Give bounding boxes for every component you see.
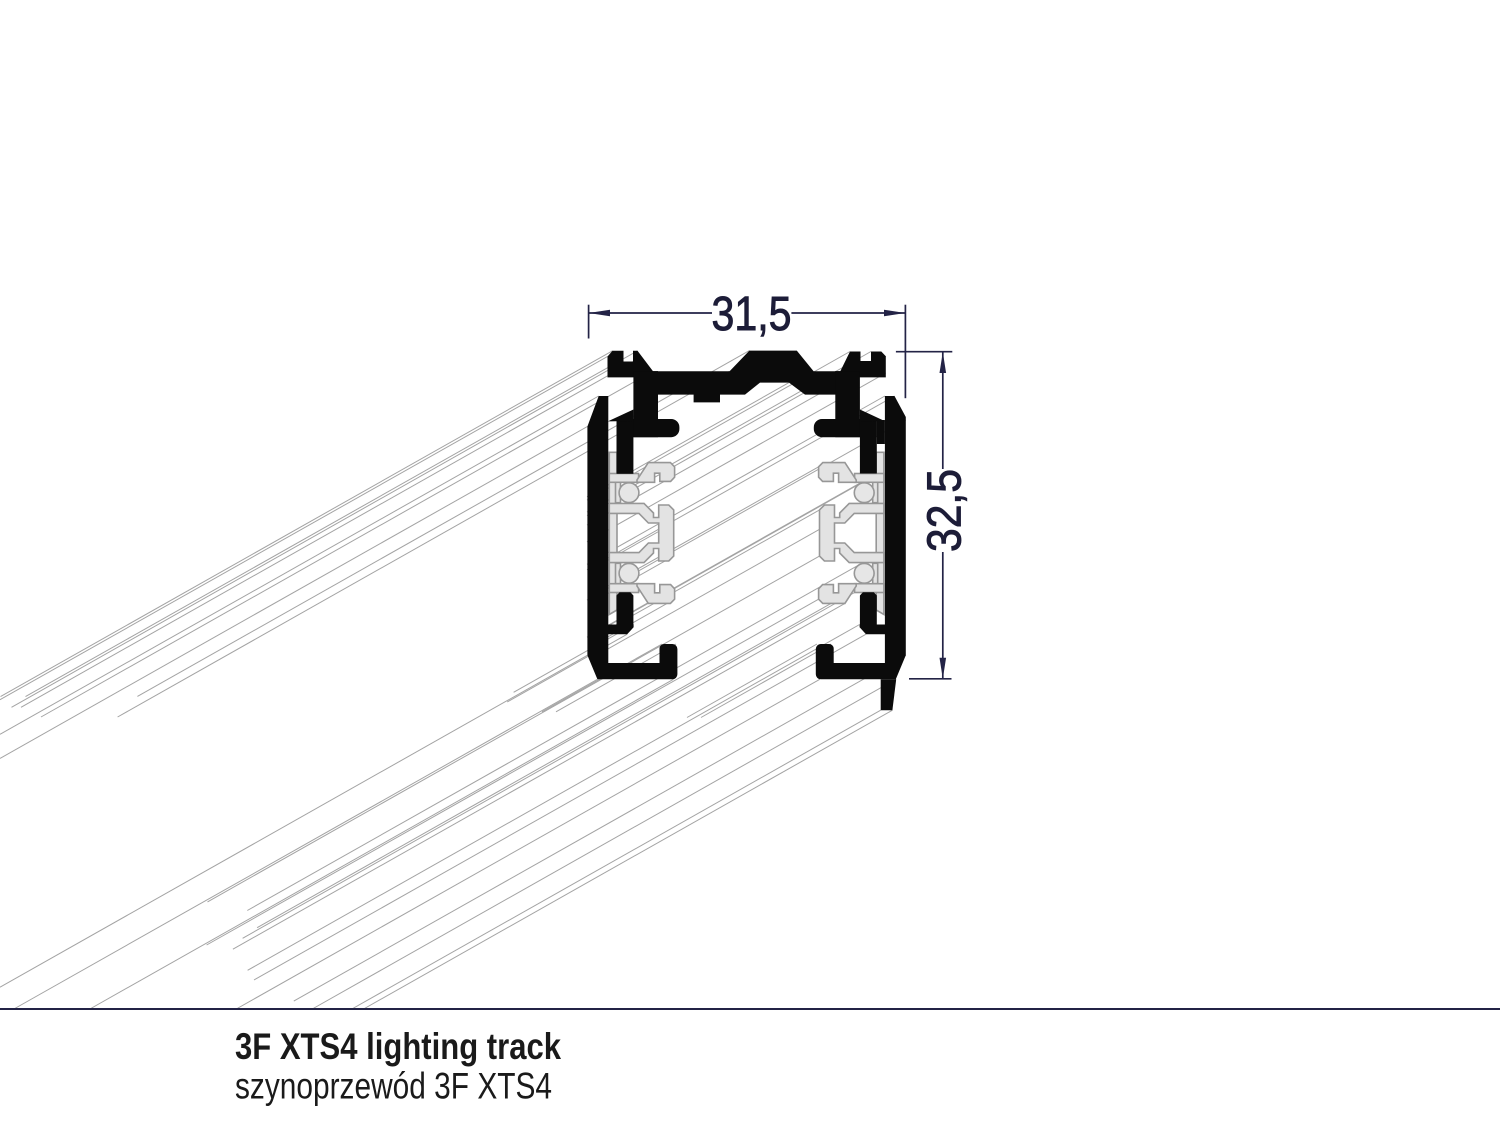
svg-text:31,5: 31,5 (712, 288, 792, 341)
svg-text:32,5: 32,5 (919, 469, 972, 552)
svg-text:szynoprzewód 3F XTS4: szynoprzewód 3F XTS4 (235, 1065, 552, 1107)
svg-text:3F XTS4 lighting track: 3F XTS4 lighting track (235, 1025, 561, 1067)
